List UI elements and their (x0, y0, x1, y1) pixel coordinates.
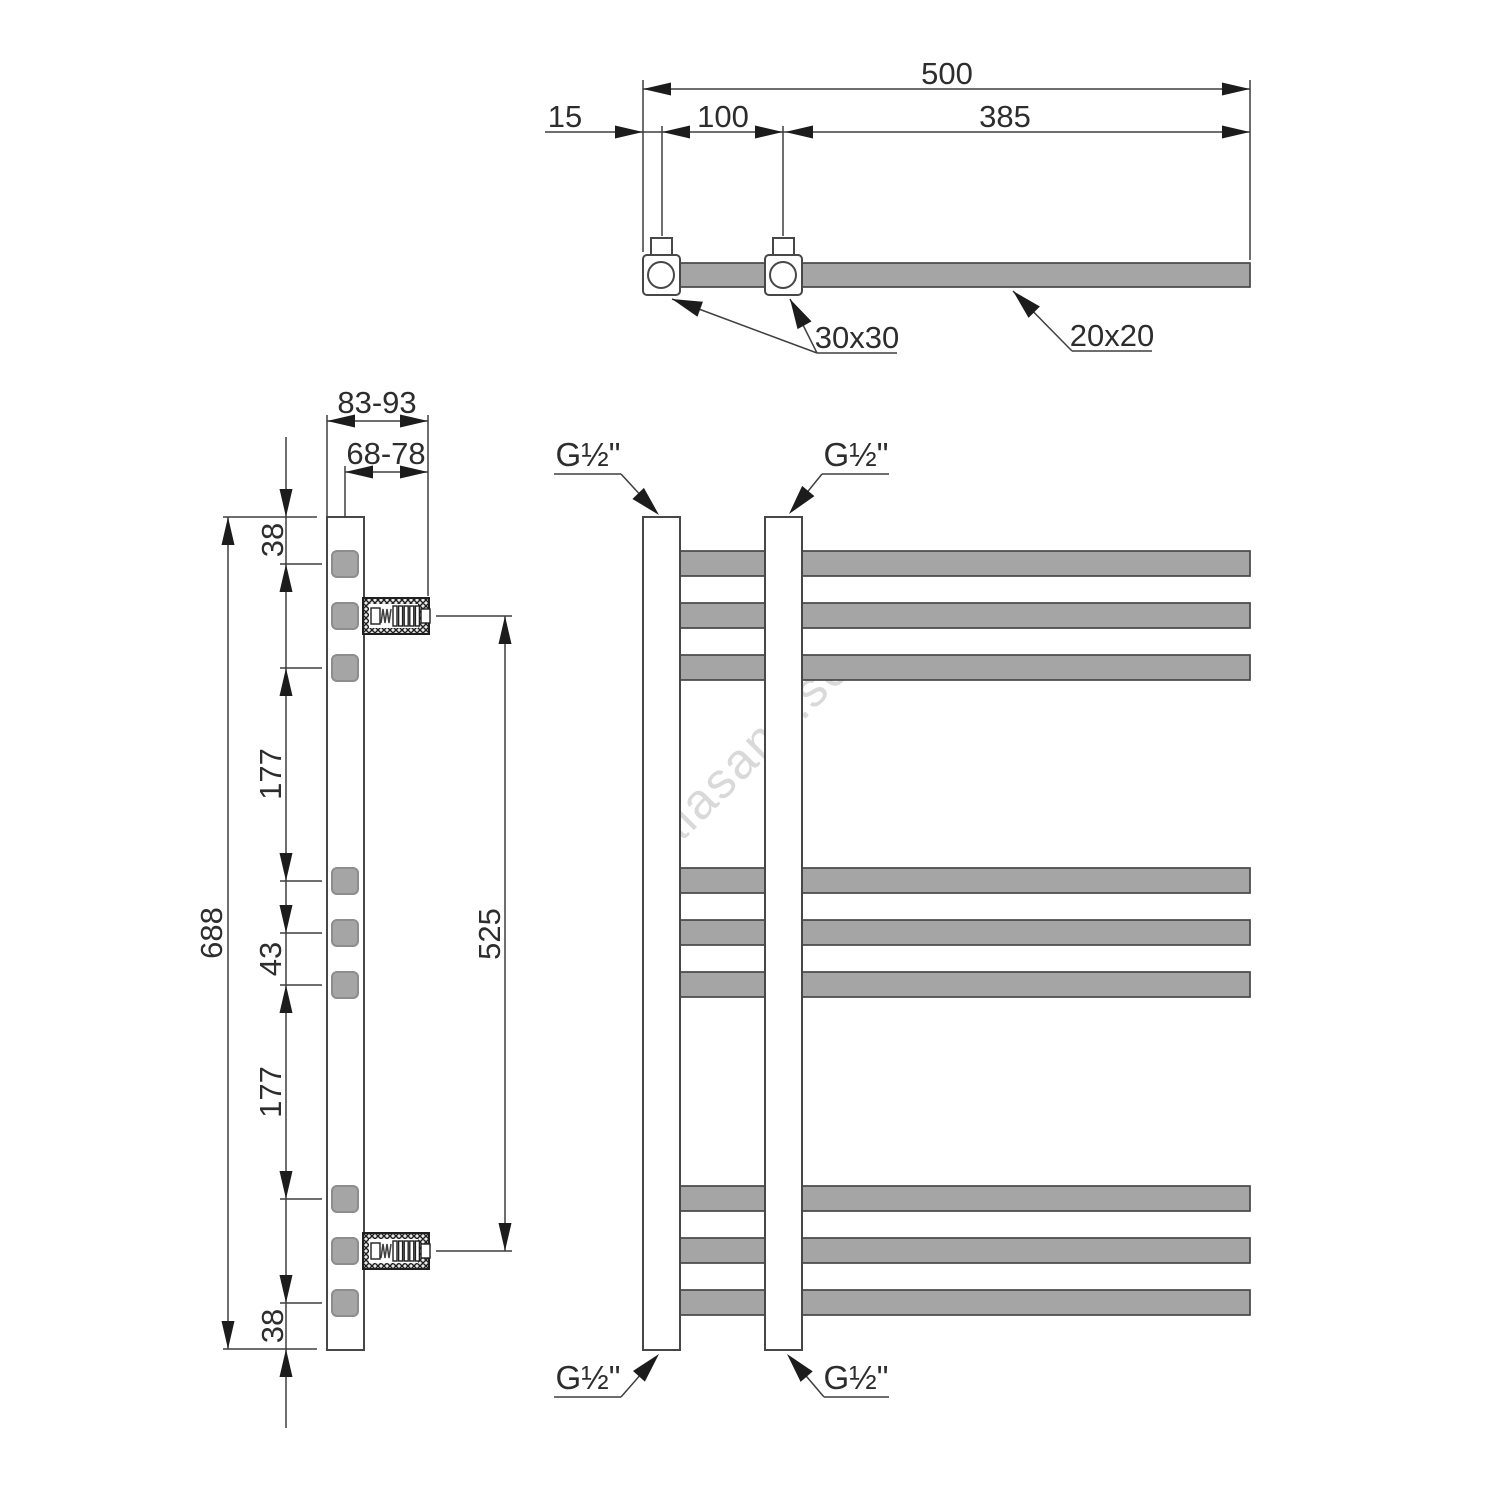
wall-bracket-top (363, 598, 430, 634)
technical-drawing-page: alasans.se 500 15 100 385 (0, 0, 1500, 1500)
top-view-rail-tube (643, 263, 1250, 287)
front-view: G½" G½" G½" G½" (554, 436, 1250, 1397)
fitting-callout-top-left: G½" (554, 436, 665, 521)
dim-connection-spacing: 100 (697, 99, 749, 134)
top-view-stub-left (651, 238, 672, 256)
side-view: 83-93 68-78 (194, 385, 512, 1428)
rail-profile-callout: 20x20 (1007, 285, 1154, 353)
collector-profile-callout: 30x30 (669, 291, 899, 355)
fitting-top-left-label: G½" (556, 436, 621, 473)
dim-rail-pitch: 43 (253, 942, 288, 976)
front-view-collector-right (765, 517, 802, 1350)
top-view-stub-right (773, 238, 794, 256)
dim-upper-gap: 177 (253, 748, 288, 800)
dim-bracket-spacing: 525 (472, 908, 507, 960)
label-collector-profile: 30x30 (815, 320, 899, 355)
dim-overall-height: 688 (194, 907, 229, 959)
wall-bracket-bottom (363, 1233, 430, 1269)
bracket-spacing-dimension: 525 (436, 616, 512, 1251)
fitting-bottom-left-label: G½" (556, 1359, 621, 1396)
dim-last-rail-to-bottom: 38 (255, 1309, 290, 1343)
top-view-collector-left-bore (648, 262, 674, 288)
side-view-rail-sections (332, 551, 358, 1316)
fitting-bottom-right-label: G½" (824, 1359, 889, 1396)
top-view-extension-lines (545, 80, 1250, 260)
radiator-dimension-drawing: alasans.se 500 15 100 385 (0, 0, 1500, 1500)
top-view: 500 15 100 385 30x30 (545, 56, 1250, 355)
dim-overall-width: 500 (921, 56, 973, 91)
dim-wall-distance-outer: 83-93 (337, 385, 416, 420)
dim-top-to-first-rail: 38 (255, 523, 290, 557)
dim-wall-distance-axis: 68-78 (346, 436, 425, 471)
fitting-callout-bottom-right: G½" (781, 1349, 889, 1397)
dim-edge-to-first-connection: 15 (548, 99, 582, 134)
fitting-top-right-label: G½" (824, 436, 889, 473)
height-dimension-chain: 38 177 43 177 38 688 (194, 437, 322, 1428)
dim-connection-to-edge: 385 (979, 99, 1031, 134)
label-rail-profile: 20x20 (1070, 318, 1154, 353)
fitting-callout-bottom-left: G½" (554, 1349, 665, 1397)
dim-lower-gap: 177 (253, 1066, 288, 1118)
front-view-collector-left (643, 517, 680, 1350)
fitting-callout-top-right: G½" (783, 436, 889, 519)
top-view-collector-right-bore (770, 262, 796, 288)
